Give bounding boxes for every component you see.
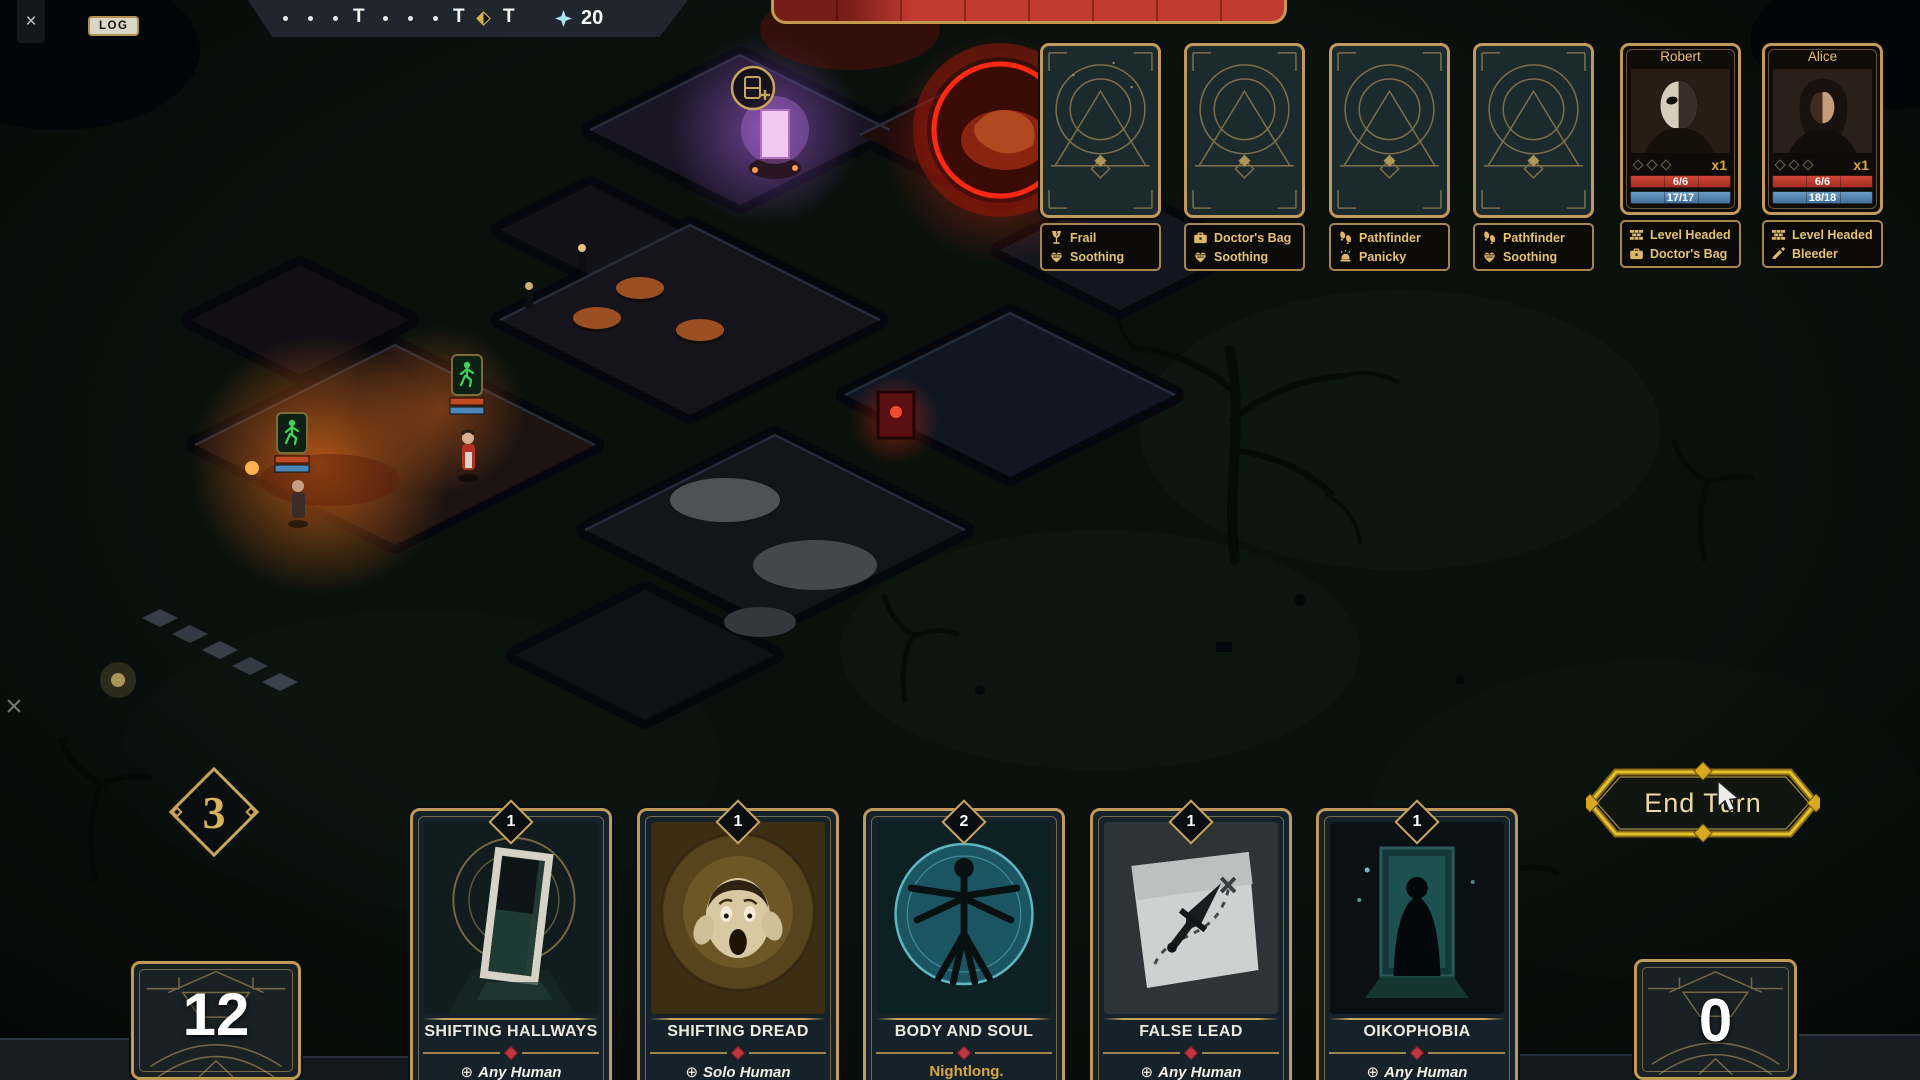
title-rule — [876, 1018, 1052, 1020]
trait-row: Soothing — [1193, 249, 1296, 264]
level-headed-icon — [1629, 227, 1644, 242]
level-headed-icon — [1771, 227, 1786, 242]
card-back-pattern — [1187, 46, 1302, 215]
card-art — [877, 822, 1051, 1014]
card-art — [651, 822, 825, 1014]
trait-row: Pathfinder — [1338, 230, 1441, 245]
hand-card-false-lead[interactable]: 1 FALSE LEAD ⊕Any Human — [1090, 808, 1292, 1080]
title-rule — [1329, 1018, 1505, 1020]
card-target: ⊕Solo Human — [640, 1063, 836, 1080]
draw-pile[interactable]: 12 — [131, 961, 301, 1080]
character-portrait — [1773, 67, 1872, 155]
trap-traits-panel: Frail Soothing — [1040, 223, 1161, 271]
trait-row: Frail — [1049, 230, 1152, 245]
trait-label: Soothing — [1070, 250, 1124, 264]
trait-row: Soothing — [1482, 249, 1585, 264]
red-diamond-icon — [1410, 1046, 1424, 1060]
title-ornament — [423, 1048, 599, 1058]
hand-card-body-and-soul[interactable]: 2 BODY AND SOUL Nightlong. — [863, 808, 1065, 1080]
title-rule — [650, 1018, 826, 1020]
card-title: SHIFTING DREAD — [643, 1023, 833, 1041]
title-rule — [423, 1018, 599, 1020]
plays-left-badge: 3 — [168, 766, 260, 858]
red-diamond-icon — [504, 1046, 518, 1060]
hand-card-oikophobia[interactable]: 1 OIKOPHOBIA ⊕Any Human — [1316, 808, 1518, 1080]
monster-health-bar — [771, 0, 1287, 24]
trait-label: Pathfinder — [1359, 231, 1421, 245]
soothing-icon — [1193, 249, 1208, 264]
played-card-slot[interactable]: Pathfinder Panicky — [1329, 43, 1450, 271]
trait-row: Level Headed — [1629, 227, 1732, 242]
trait-row: Doctor's Bag — [1193, 230, 1296, 245]
face-down-card[interactable] — [1040, 43, 1161, 218]
character-traits-panel: Level Headed Doctor's Bag — [1620, 220, 1741, 268]
trait-label: Level Headed — [1792, 228, 1873, 242]
multiplier: x1 — [1853, 157, 1869, 173]
sanity-bar: 18/18 — [1772, 191, 1873, 204]
trap-traits-panel: Doctor's Bag Soothing — [1184, 223, 1305, 271]
soothing-icon — [1482, 249, 1497, 264]
title-ornament — [650, 1048, 826, 1058]
timeline-dot — [283, 16, 288, 21]
hand-card-shifting-hallways[interactable]: 1 SHIFTING HALLWAYS ⊕Any Human — [410, 808, 612, 1080]
target-icon: ⊕ — [685, 1064, 698, 1080]
essence-count: 20 — [581, 7, 603, 30]
card-art — [1104, 822, 1278, 1014]
card-art — [1330, 822, 1504, 1014]
trap-traits-panel: Pathfinder Soothing — [1473, 223, 1594, 271]
trait-label: Soothing — [1503, 250, 1557, 264]
multiplier: x1 — [1711, 157, 1727, 173]
trait-row: Doctor's Bag — [1629, 246, 1732, 261]
card-back-pattern — [1332, 46, 1447, 215]
red-diamond-icon — [731, 1046, 745, 1060]
timeline-dot — [308, 16, 313, 21]
face-down-card[interactable] — [1184, 43, 1305, 218]
hp-bar: 6/6 — [1772, 175, 1873, 188]
played-card-slot[interactable]: Doctor's Bag Soothing — [1184, 43, 1305, 271]
trait-label: Panicky — [1359, 250, 1406, 264]
close-button[interactable]: × — [17, 0, 45, 43]
card-title: OIKOPHOBIA — [1322, 1023, 1512, 1041]
hp-bar: 6/6 — [1630, 175, 1731, 188]
trait-label: Level Headed — [1650, 228, 1731, 242]
title-ornament — [1103, 1048, 1279, 1058]
target-icon: ⊕ — [1367, 1064, 1380, 1080]
pathfinder-icon — [1482, 230, 1497, 245]
pathfinder-icon — [1338, 230, 1353, 245]
character-traits-panel: Level Headed Bleeder — [1762, 220, 1883, 268]
timeline-turn-marker: T — [453, 6, 465, 28]
trait-row: Pathfinder — [1482, 230, 1585, 245]
title-ornament — [876, 1048, 1052, 1058]
timeline-dot — [333, 16, 338, 21]
title-ornament — [1329, 1048, 1505, 1058]
trait-label: Bleeder — [1792, 247, 1838, 261]
card-title: BODY AND SOUL — [869, 1023, 1059, 1041]
essence-icon — [554, 9, 573, 28]
draw-pile-count: 12 — [134, 980, 298, 1049]
timeline-dot — [408, 16, 413, 21]
card-target: Nightlong. — [866, 1063, 1062, 1080]
trait-label: Doctor's Bag — [1214, 231, 1291, 245]
plays-left-count: 3 — [168, 766, 260, 858]
trait-label: Pathfinder — [1503, 231, 1565, 245]
timeline-current-marker-icon — [476, 11, 491, 26]
trait-label: Doctor's Bag — [1650, 247, 1727, 261]
timeline-dot — [433, 16, 438, 21]
red-diamond-icon — [1184, 1046, 1198, 1060]
character-name: Robert — [1623, 46, 1738, 64]
action-pips — [1776, 161, 1812, 169]
action-pips — [1634, 161, 1670, 169]
hand-card-shifting-dread[interactable]: 1 SHIFTING DREAD ⊕Solo Human — [637, 808, 839, 1080]
mouse-cursor — [1716, 780, 1742, 814]
discard-pile[interactable]: 0 — [1634, 959, 1797, 1080]
target-icon: ⊕ — [1141, 1064, 1154, 1080]
trap-traits-panel: Pathfinder Panicky — [1329, 223, 1450, 271]
trait-row: Panicky — [1338, 249, 1441, 264]
card-title: FALSE LEAD — [1096, 1023, 1286, 1041]
doctors-bag-icon — [1629, 246, 1644, 261]
game-screen: × LOG T T T 20 — [0, 0, 1920, 1080]
discard-pile-count: 0 — [1637, 986, 1794, 1055]
panicky-icon — [1338, 249, 1353, 264]
card-target: ⊕Any Human — [1319, 1063, 1515, 1080]
red-diamond-icon — [957, 1046, 971, 1060]
title-rule — [1103, 1018, 1279, 1020]
played-card-slot[interactable]: Frail Soothing — [1040, 43, 1161, 271]
face-down-card[interactable] — [1329, 43, 1450, 218]
character-card-robert[interactable]: Robert x1 6/6 17/17 Level Headed — [1620, 43, 1741, 268]
fragile-icon — [1049, 230, 1064, 245]
trait-row: Soothing — [1049, 249, 1152, 264]
trait-label: Soothing — [1214, 250, 1268, 264]
turn-timeline: T T T 20 — [248, 0, 688, 37]
timeline-turn-marker: T — [503, 6, 515, 28]
target-icon: ⊕ — [461, 1064, 474, 1080]
timeline-turn-marker: T — [353, 6, 365, 28]
soothing-icon — [1049, 249, 1064, 264]
played-card-slot[interactable]: Pathfinder Soothing — [1473, 43, 1594, 271]
trait-label: Frail — [1070, 231, 1096, 245]
doctors-bag-icon — [1193, 230, 1208, 245]
card-back-pattern — [1043, 46, 1158, 215]
sanity-bar: 17/17 — [1630, 191, 1731, 204]
trait-row: Bleeder — [1771, 246, 1874, 261]
timeline-dot — [383, 16, 388, 21]
card-back-pattern — [1476, 46, 1591, 215]
character-name: Alice — [1765, 46, 1880, 64]
trait-row: Level Headed — [1771, 227, 1874, 242]
card-target: ⊕Any Human — [1093, 1063, 1289, 1080]
face-down-card[interactable] — [1473, 43, 1594, 218]
end-turn-button[interactable]: End Turn — [1586, 760, 1820, 846]
card-target: ⊕Any Human — [413, 1063, 609, 1080]
character-portrait — [1631, 67, 1730, 155]
card-title: SHIFTING HALLWAYS — [416, 1023, 606, 1041]
card-art — [424, 822, 598, 1014]
bleeder-icon — [1771, 246, 1786, 261]
log-button[interactable]: LOG — [88, 16, 139, 36]
end-turn-label: End Turn — [1644, 788, 1762, 818]
character-card-alice[interactable]: Alice x1 6/6 18/18 Level — [1762, 43, 1883, 268]
